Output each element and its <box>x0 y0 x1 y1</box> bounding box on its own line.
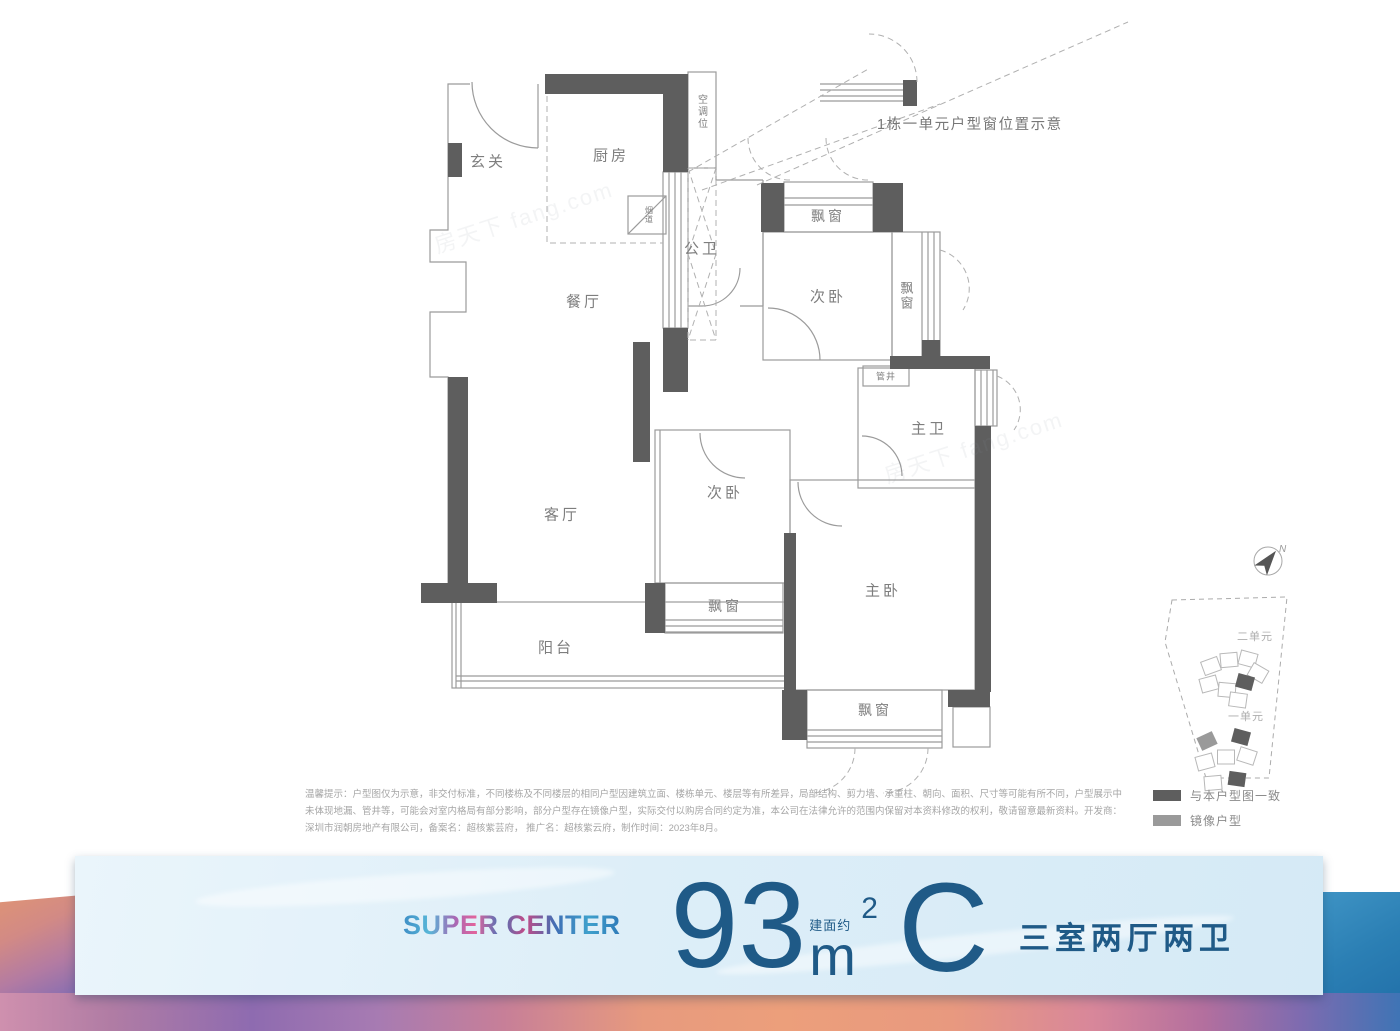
area-unit: m <box>809 934 856 978</box>
bottom-banner: SUPER CENTER 93 建面约 m 2 C 三室两厅两卫 <box>75 856 1323 995</box>
room-label-living: 客厅 <box>544 504 580 525</box>
walls-solid-layer <box>421 74 991 740</box>
banner-content: SUPER CENTER 93 建面约 m 2 C 三室两厅两卫 <box>403 856 1235 995</box>
north-label: N <box>1279 544 1286 555</box>
room-label-balcony: 阳台 <box>538 637 574 658</box>
watercolor-art-strip <box>0 993 1400 1031</box>
legend-label-same: 与本户型图一致 <box>1190 787 1281 804</box>
room-label-baywindow-right: 飘窗 <box>897 281 916 311</box>
room-label-master-bath: 主卫 <box>911 418 947 439</box>
room-label-entry: 玄关 <box>470 151 506 172</box>
room-label-flue: 烟道 <box>644 206 655 224</box>
room-label-kitchen: 厨房 <box>593 145 629 166</box>
room-label-baywindow-master: 飘窗 <box>858 700 892 720</box>
legend-swatch-same <box>1153 790 1181 801</box>
area-superscript: 2 <box>861 892 878 926</box>
brand-logo: SUPER CENTER <box>403 910 621 941</box>
disclaimer-line-1: 温馨提示：户型图仅为示意，非交付标准，不同楼栋及不同楼层的相同户型因建筑立面、楼… <box>305 786 1122 803</box>
room-label-pipe-shaft: 管井 <box>876 370 896 383</box>
disclaimer-line-3: 深圳市润朝房地产有限公司，备案名：超核紫芸府， 推广名：超核紫云府，制作时间：2… <box>305 820 1122 837</box>
legend-label-mirror: 镜像户型 <box>1190 812 1242 829</box>
cluster-label-unit2: 二单元 <box>1237 628 1273 644</box>
unit-type-letter: C <box>898 878 989 979</box>
room-label-dining: 餐厅 <box>566 291 602 312</box>
walls-outline-layer <box>430 72 997 748</box>
room-label-bedroom2-top: 次卧 <box>810 286 846 307</box>
room-label-bedroom2-mid: 次卧 <box>707 482 743 503</box>
window-position-annotation: 1栋一单元户型窗位置示意 <box>877 113 1063 134</box>
disclaimer-line-2: 未体现地漏、管井等，可能会对室内格局有部分影响，部分户型存在镜像户型，实际交付以… <box>305 803 1122 820</box>
room-label-master-bed: 主卧 <box>865 580 901 601</box>
room-label-guest-bath: 公卫 <box>684 238 720 259</box>
legend-swatch-mirror <box>1153 815 1181 826</box>
floorplan-page: 玄关 厨房 空调位 烟道 公卫 餐厅 飘窗 次卧 飘窗 管井 主卫 次卧 客厅 … <box>0 0 1400 1031</box>
cluster-label-unit1: 一单元 <box>1228 708 1264 724</box>
legend-row-mirror: 镜像户型 <box>1153 812 1281 829</box>
legend-row-same: 与本户型图一致 <box>1153 787 1281 804</box>
area-value: 93 <box>671 875 807 975</box>
room-label-baywindow-bottom: 飘窗 <box>708 596 742 616</box>
room-label-ac-spot: 空调位 <box>694 94 709 130</box>
siteplan-legend: 与本户型图一致 镜像户型 <box>1153 787 1281 837</box>
siteplan-drawing <box>1165 546 1287 791</box>
area-unit-block: 建面约 m 2 <box>809 874 856 978</box>
layout-description: 三室两厅两卫 <box>1019 913 1235 958</box>
room-label-baywindow-top: 飘窗 <box>811 206 845 226</box>
disclaimer: 温馨提示：户型图仅为示意，非交付标准，不同楼栋及不同楼层的相同户型因建筑立面、楼… <box>305 786 1122 837</box>
